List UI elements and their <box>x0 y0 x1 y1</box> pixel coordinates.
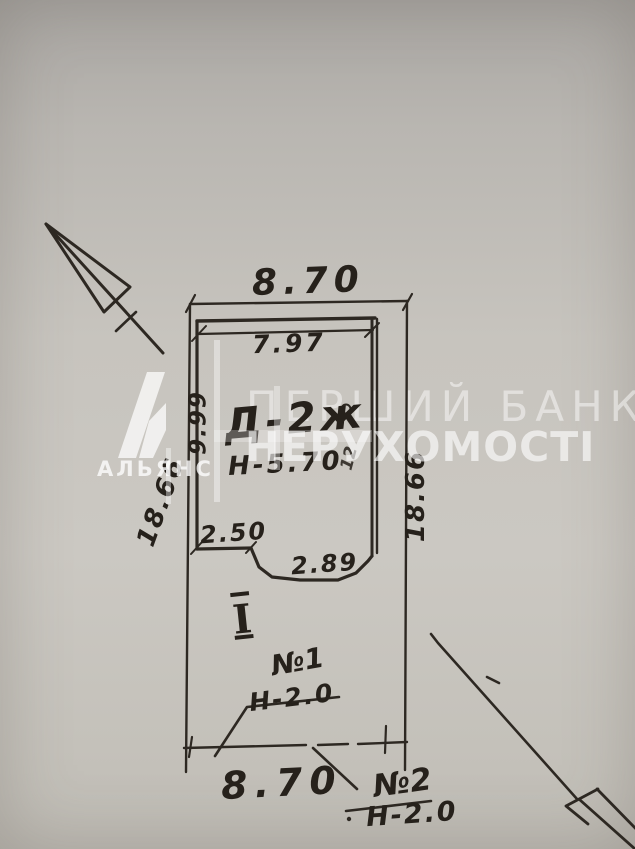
dim-notch-bottom: 2.89 <box>290 550 359 579</box>
building-mark: Д-2ж <box>222 392 367 446</box>
section-mark: I <box>231 599 254 641</box>
north-arrow-icon <box>46 224 163 353</box>
dim-left-inner: 9.99 <box>188 363 211 483</box>
annex2-height: Н-2.0 <box>365 798 458 831</box>
dim-ledge-left: 2.50 <box>199 519 268 548</box>
building-height: Н-5.70 <box>227 448 343 480</box>
scanned-plan-page: ПЕРШИЙ БАНК <box>0 0 635 849</box>
dim-right-outer: 18.66 <box>403 431 429 561</box>
dim-top-inner: 7.97 <box>252 330 327 358</box>
dim-bottom-outer: 8.70 <box>220 761 344 805</box>
boundary-arrow-bottom-right <box>431 634 635 849</box>
dim-top-outer: 8.70 <box>251 262 365 302</box>
